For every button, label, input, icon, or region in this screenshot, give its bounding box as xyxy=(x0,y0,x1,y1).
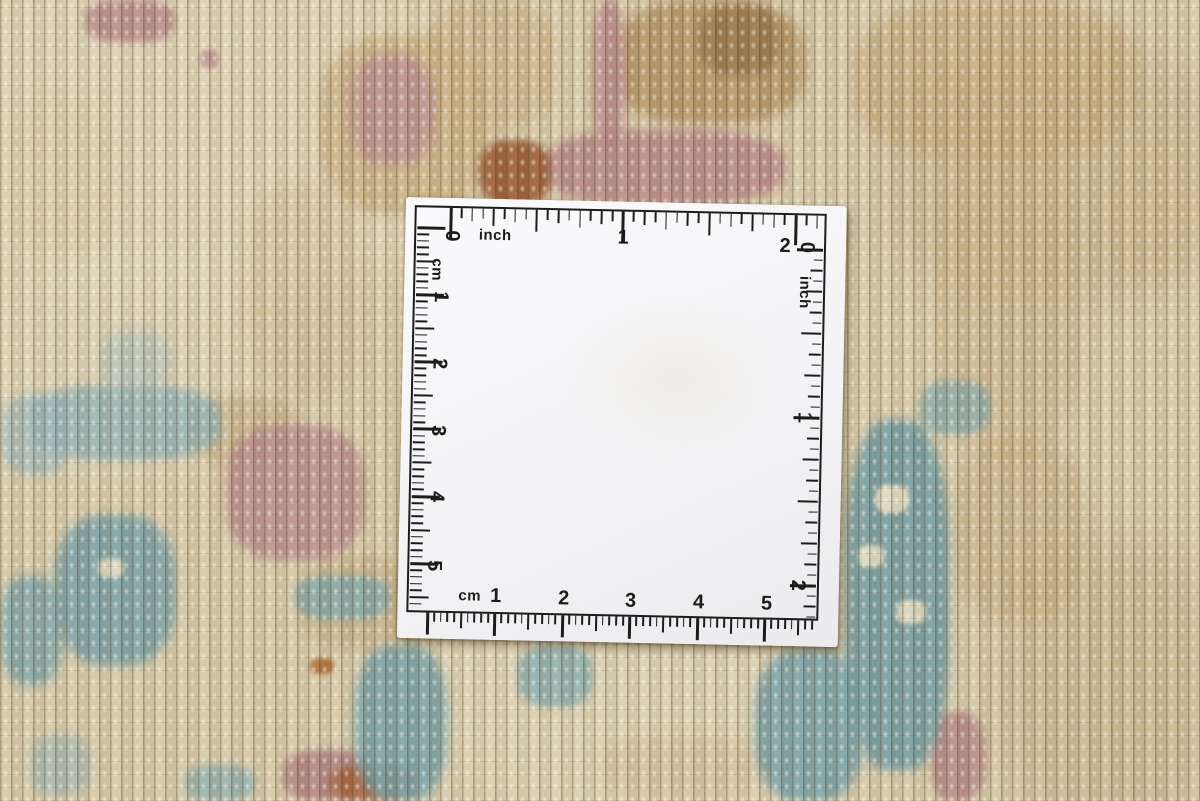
ruler-tick xyxy=(710,618,712,627)
ruler-tick xyxy=(413,394,432,396)
ruler-tick xyxy=(415,327,434,329)
ruler-tick xyxy=(676,618,678,627)
ruler-tick xyxy=(798,500,818,502)
ruler-tick xyxy=(804,620,806,629)
ruler-tick xyxy=(809,354,821,356)
ruler-tick xyxy=(415,321,427,323)
ruler-tick xyxy=(804,564,816,566)
ruler-tick xyxy=(636,617,638,626)
ruler-tick xyxy=(534,615,536,624)
ruler-tick xyxy=(547,210,549,220)
ruler-tick xyxy=(633,212,635,222)
ruler-tick xyxy=(611,211,613,221)
ruler-tick xyxy=(413,401,425,403)
ruler-tick xyxy=(410,569,422,571)
rug-motif xyxy=(310,658,334,674)
ruler-tick xyxy=(808,553,817,555)
ruler-tick xyxy=(414,381,426,383)
ruler-tick xyxy=(410,576,422,578)
ruler-tick xyxy=(409,596,428,598)
ruler-tick xyxy=(416,267,428,269)
ruler-tick xyxy=(809,490,818,492)
ruler-tick xyxy=(415,300,427,302)
ruler-tick xyxy=(609,616,611,625)
ruler-tick xyxy=(425,613,428,635)
ruler-tick xyxy=(548,615,550,624)
ruler-tick xyxy=(773,215,775,228)
rug-motif xyxy=(100,330,170,390)
ruler-tick xyxy=(750,619,752,628)
ruler-tick xyxy=(807,595,816,597)
ruler-tick xyxy=(805,522,817,524)
ruler-tick xyxy=(793,416,819,420)
ruler-tick xyxy=(595,616,597,631)
rug-motif xyxy=(518,645,592,707)
ruler-tick xyxy=(695,618,698,640)
rug-motif xyxy=(0,95,120,255)
ruler-tick xyxy=(413,408,425,410)
ruler-tick xyxy=(412,468,424,470)
rug-motif xyxy=(85,0,175,42)
ruler-tick xyxy=(453,613,455,622)
ruler-tick xyxy=(741,214,743,224)
ruler-tick xyxy=(689,618,691,627)
photo-rug-with-ruler: 0 inch 1 2 0 inch 1 2 cm 1 2 3 4 5 cm 1 … xyxy=(0,0,1200,801)
rug-motif xyxy=(858,545,884,567)
ruler-tick xyxy=(807,574,816,576)
top-scale-unit-label: inch xyxy=(467,226,523,243)
ruler-tick xyxy=(414,360,442,364)
ruler-tick xyxy=(413,388,425,390)
ruler-tick xyxy=(812,343,821,345)
ruler-tick xyxy=(555,615,557,624)
ruler-tick xyxy=(416,247,428,249)
rug-motif xyxy=(355,645,447,801)
ruler-tick xyxy=(507,614,509,623)
ruler-tick xyxy=(413,427,441,431)
bottom-scale-label-5: 5 xyxy=(755,592,777,614)
ruler-tick xyxy=(480,614,482,623)
ruler-tick xyxy=(803,459,819,461)
rug-motif xyxy=(955,440,1085,620)
rug-motif xyxy=(0,395,70,475)
ruler-tick xyxy=(812,322,821,324)
rug-motif xyxy=(480,140,550,205)
ruler-tick xyxy=(527,615,529,630)
ruler-tick xyxy=(662,617,664,632)
ruler-tick xyxy=(411,522,423,524)
ruler-tick xyxy=(644,212,646,225)
ruler-tick xyxy=(784,620,786,629)
ruler-tick xyxy=(797,620,799,635)
ruler-tick xyxy=(521,614,523,623)
ruler-tick xyxy=(806,291,822,293)
ruler-tick xyxy=(669,618,671,627)
ruler-tick xyxy=(698,213,700,223)
ruler-tick xyxy=(811,385,820,387)
ruler-tick xyxy=(797,248,823,252)
ruler-tick xyxy=(807,438,819,440)
ruler-tick xyxy=(440,613,442,622)
ruler-tick xyxy=(410,549,422,551)
ruler-tick xyxy=(809,469,818,471)
rug-motif xyxy=(295,575,390,620)
ruler-tick xyxy=(493,614,496,636)
ruler-tick xyxy=(808,396,820,398)
ruler-tick xyxy=(810,427,819,429)
rug-motif xyxy=(55,515,175,665)
ruler-tick xyxy=(467,613,469,622)
ruler-tick xyxy=(784,215,786,225)
ruler-tick xyxy=(412,475,424,477)
ruler-tick xyxy=(810,448,819,450)
ruler-tick xyxy=(575,616,577,625)
left-scale-label-5: 5 xyxy=(423,554,445,576)
rug-motif xyxy=(200,50,218,68)
ruler-tick xyxy=(730,214,732,227)
ruler-tick xyxy=(813,301,822,303)
ruler-tick xyxy=(804,375,820,377)
rug-motif xyxy=(225,425,365,560)
ruler-tick xyxy=(794,215,798,245)
ruler-tick xyxy=(812,364,821,366)
rug-motif xyxy=(920,380,990,435)
rug-motif xyxy=(0,575,62,685)
ruler-tick xyxy=(412,482,424,484)
ruler-tick xyxy=(683,618,685,627)
ruler-tick xyxy=(805,215,807,225)
ruler-tick xyxy=(416,280,428,282)
rug-motif xyxy=(875,485,909,513)
ruler-tick xyxy=(460,613,462,628)
ruler-tick xyxy=(560,615,563,637)
ruler-tick xyxy=(816,216,818,229)
ruler-tick xyxy=(410,536,422,538)
ruler-tick xyxy=(588,616,590,625)
ruler-tick xyxy=(414,354,426,356)
ruler-tick xyxy=(409,589,421,591)
ruler-tick xyxy=(806,480,818,482)
ruler-tick xyxy=(811,621,813,630)
ruler-tick xyxy=(628,617,631,639)
ruler-tick xyxy=(582,616,584,625)
bottom-scale-label-1: 1 xyxy=(484,585,506,607)
ruler-tick xyxy=(449,208,453,238)
rug-motif xyxy=(600,735,760,801)
ruler-tick xyxy=(810,312,822,314)
rug-motif xyxy=(755,650,863,801)
ruler-tick xyxy=(737,619,739,628)
ruler-tick xyxy=(757,619,759,628)
rug-motif xyxy=(245,180,365,400)
ruler-tick xyxy=(413,415,425,417)
ruler-tick xyxy=(814,259,823,261)
ruler-tick xyxy=(447,613,449,622)
ruler-tick xyxy=(568,210,570,220)
ruler-tick xyxy=(622,617,624,626)
ruler-tick xyxy=(770,620,772,629)
ruler-tick xyxy=(514,614,516,623)
ruler-tick xyxy=(514,209,516,222)
ruler-tick xyxy=(411,509,423,511)
ruler-tick xyxy=(801,543,817,545)
ruler-tick xyxy=(811,270,823,272)
rug-motif xyxy=(185,765,255,801)
ruler-tick xyxy=(409,603,421,605)
ruler-tick xyxy=(557,210,559,223)
ruler-tick xyxy=(777,620,779,629)
ruler-tick xyxy=(808,511,817,513)
ruler-tick xyxy=(655,212,657,222)
rug-motif xyxy=(700,5,780,75)
rug-motif xyxy=(425,0,555,130)
ruler-tick xyxy=(541,615,543,624)
ruler-tick xyxy=(417,226,445,230)
ruler-tick xyxy=(687,213,689,226)
ruler-tick xyxy=(412,448,424,450)
ruler-tick xyxy=(791,620,793,629)
ruler-tick xyxy=(415,293,443,297)
ruler-tick xyxy=(411,502,423,504)
ruler-tick xyxy=(719,214,721,224)
ruler-tick xyxy=(433,613,435,622)
ruler-tick xyxy=(411,489,423,491)
ruler-tick xyxy=(412,455,424,457)
rug-motif xyxy=(98,558,124,578)
ruler-tick xyxy=(416,273,428,275)
ruler-tick xyxy=(601,211,603,224)
ruler-tick xyxy=(415,314,427,316)
right-scale-unit-label: inch xyxy=(797,275,814,309)
ruler-tick xyxy=(801,332,821,334)
ruler-tick xyxy=(808,532,817,534)
ruler-tick xyxy=(417,233,429,235)
bottom-scale-label-2: 2 xyxy=(552,587,574,609)
ruler-tick xyxy=(716,619,718,628)
ruler-tick xyxy=(416,260,435,262)
ruler-tick xyxy=(762,214,764,224)
ruler-tick xyxy=(621,212,625,242)
ruler-tick xyxy=(806,616,815,618)
ruler-tick xyxy=(504,209,506,219)
ruler-tick xyxy=(410,562,438,566)
ruler-tick xyxy=(409,583,421,585)
ruler-tick xyxy=(414,374,426,376)
rug-motif xyxy=(896,600,926,624)
ruler-tick xyxy=(413,421,425,423)
ruler-tick xyxy=(730,619,732,634)
ruler-tick xyxy=(482,209,484,219)
rug-motif xyxy=(350,55,435,165)
ruler-tick xyxy=(649,617,651,626)
ruler-tick xyxy=(602,616,604,625)
ruler-tick xyxy=(411,529,430,531)
ruler-card: 0 inch 1 2 0 inch 1 2 cm 1 2 3 4 5 cm 1 … xyxy=(397,197,847,647)
ruler-tick xyxy=(416,253,428,255)
rug-motif xyxy=(545,130,785,205)
ruler-tick xyxy=(415,334,427,336)
ruler-tick xyxy=(763,620,766,642)
rug-motif xyxy=(592,0,626,150)
bottom-scale-unit-label: cm xyxy=(456,587,484,604)
ruler-tick xyxy=(414,341,426,343)
ruler-tick xyxy=(813,280,822,282)
ruler-tick xyxy=(414,368,426,370)
ruler-tick xyxy=(411,495,439,499)
ruler-tick xyxy=(471,208,473,221)
ruler-tick xyxy=(590,211,592,221)
ruler-tick xyxy=(414,347,426,349)
ruler-tick xyxy=(743,619,745,628)
ruler-tick xyxy=(811,406,820,408)
ruler-tick xyxy=(412,435,424,437)
ruler-tick xyxy=(410,542,422,544)
ruler-tick xyxy=(803,606,815,608)
ruler-tick xyxy=(417,240,429,242)
ruler-tick xyxy=(568,615,570,624)
left-scale-label-1: 1 xyxy=(430,286,452,308)
ruler-tick xyxy=(487,614,489,623)
rug-motif xyxy=(1100,140,1200,280)
ruler-tick xyxy=(615,616,617,625)
rug-motif xyxy=(30,735,90,795)
bottom-scale-label-3: 3 xyxy=(619,590,641,612)
ruler-tick xyxy=(411,516,423,518)
ruler-tick xyxy=(474,614,476,623)
bottom-scale-label-4: 4 xyxy=(687,591,709,613)
ruler-tick xyxy=(703,618,705,627)
ruler-tick xyxy=(790,584,816,588)
ruler-tick xyxy=(412,462,431,464)
ruler-tick xyxy=(525,210,527,220)
ruler-tick xyxy=(501,614,503,623)
ruler-tick xyxy=(642,617,644,626)
ruler-tick xyxy=(415,307,427,309)
ruler-tick xyxy=(412,442,424,444)
ruler-frame xyxy=(406,205,826,621)
ruler-tick xyxy=(656,617,658,626)
ruler-tick xyxy=(723,619,725,628)
ruler-tick xyxy=(676,213,678,223)
ruler-tick xyxy=(410,556,422,558)
ruler-tick xyxy=(461,208,463,218)
ruler-tick xyxy=(416,287,428,289)
